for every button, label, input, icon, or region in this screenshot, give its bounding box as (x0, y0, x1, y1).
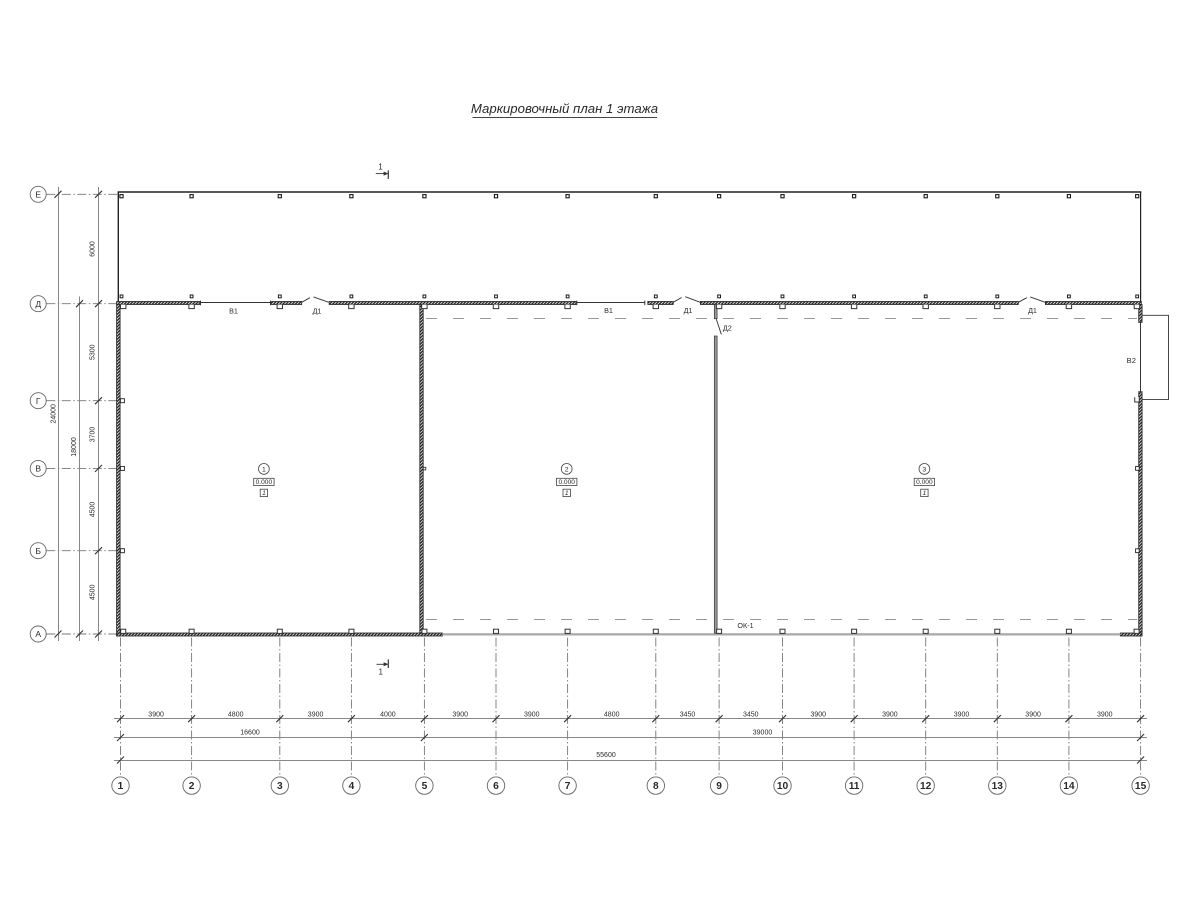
svg-text:3900: 3900 (1097, 712, 1113, 719)
svg-text:2: 2 (189, 781, 195, 792)
svg-text:6000: 6000 (90, 241, 97, 257)
svg-text:14: 14 (1063, 781, 1075, 792)
svg-text:24000: 24000 (51, 404, 58, 424)
svg-text:11: 11 (849, 781, 860, 792)
svg-text:Д1: Д1 (313, 306, 322, 315)
svg-text:8: 8 (653, 781, 659, 792)
svg-text:ОК-1: ОК-1 (737, 621, 753, 630)
svg-text:1: 1 (923, 490, 927, 497)
svg-text:16600: 16600 (240, 730, 260, 737)
svg-text:Д1: Д1 (1028, 306, 1037, 315)
svg-text:9: 9 (716, 781, 722, 792)
svg-text:3: 3 (923, 467, 927, 474)
svg-text:4500: 4500 (90, 502, 97, 518)
svg-text:1: 1 (565, 490, 569, 497)
svg-text:3900: 3900 (308, 712, 324, 719)
svg-text:3900: 3900 (148, 712, 164, 719)
svg-text:Г: Г (36, 396, 41, 406)
svg-text:3900: 3900 (1025, 712, 1041, 719)
svg-text:0.000: 0.000 (256, 479, 273, 486)
svg-text:1: 1 (262, 490, 266, 497)
svg-text:3450: 3450 (743, 712, 759, 719)
svg-text:5300: 5300 (90, 344, 97, 360)
svg-text:3900: 3900 (452, 712, 468, 719)
svg-text:10: 10 (777, 781, 789, 792)
svg-text:0.000: 0.000 (916, 479, 933, 486)
svg-text:18000: 18000 (71, 437, 78, 457)
svg-text:5: 5 (422, 781, 428, 792)
svg-text:1: 1 (378, 162, 383, 171)
svg-text:В: В (35, 464, 41, 474)
svg-text:В2: В2 (1127, 356, 1136, 365)
svg-text:55600: 55600 (596, 752, 616, 759)
svg-text:Д: Д (35, 299, 41, 309)
svg-text:13: 13 (992, 781, 1004, 792)
svg-text:4800: 4800 (604, 712, 620, 719)
svg-text:1: 1 (262, 467, 266, 474)
svg-text:12: 12 (920, 781, 932, 792)
svg-text:Б: Б (35, 546, 41, 556)
svg-text:3900: 3900 (524, 712, 540, 719)
svg-text:3900: 3900 (882, 712, 898, 719)
svg-text:3: 3 (277, 781, 283, 792)
svg-text:А: А (35, 629, 41, 639)
svg-text:0.000: 0.000 (558, 479, 575, 486)
svg-text:4000: 4000 (380, 712, 396, 719)
svg-text:3900: 3900 (954, 712, 970, 719)
svg-text:Д1: Д1 (684, 306, 693, 315)
svg-text:Маркировочный план 1 этажа: Маркировочный план 1 этажа (471, 101, 658, 116)
svg-text:15: 15 (1135, 781, 1147, 792)
svg-text:Д2: Д2 (723, 324, 732, 333)
svg-text:4: 4 (349, 781, 355, 792)
svg-text:3450: 3450 (680, 712, 696, 719)
svg-text:39000: 39000 (753, 730, 773, 737)
svg-text:В1: В1 (604, 306, 613, 315)
svg-text:2: 2 (565, 467, 569, 474)
svg-text:3700: 3700 (90, 427, 97, 443)
svg-text:6: 6 (493, 781, 499, 792)
svg-text:Е: Е (35, 189, 41, 199)
svg-text:4500: 4500 (90, 584, 97, 600)
svg-text:3900: 3900 (811, 712, 827, 719)
svg-text:В1: В1 (229, 306, 238, 315)
svg-text:1: 1 (118, 781, 124, 792)
svg-text:1: 1 (378, 668, 383, 677)
svg-text:4800: 4800 (228, 712, 244, 719)
svg-text:7: 7 (565, 781, 571, 792)
